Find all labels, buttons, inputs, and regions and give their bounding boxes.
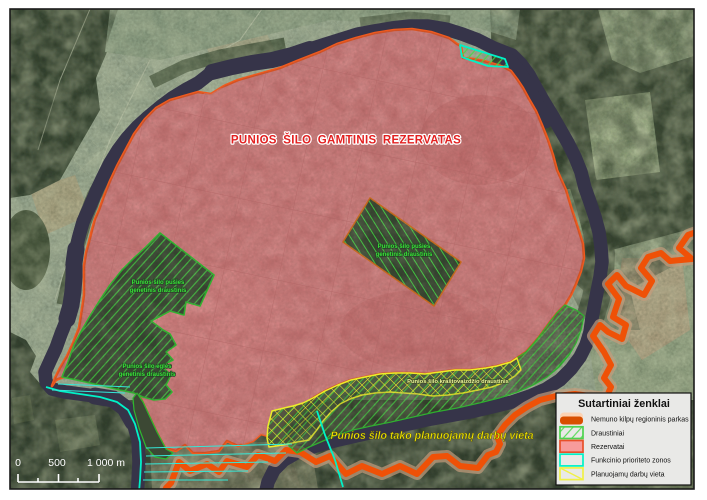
svg-text:genetinis draustinis: genetinis draustinis — [130, 288, 187, 294]
svg-text:genetinis draustinis: genetinis draustinis — [376, 252, 433, 258]
svg-text:Draustiniai: Draustiniai — [591, 430, 625, 437]
svg-text:1 000 m: 1 000 m — [87, 457, 125, 469]
svg-text:Nemuno kilpų regioninis parkas: Nemuno kilpų regioninis parkas — [591, 417, 689, 424]
svg-text:Punios šilo kraštovaizdžio dra: Punios šilo kraštovaizdžio draustinis — [407, 379, 509, 385]
svg-text:Punios šilo tako planuojamų da: Punios šilo tako planuojamų darbų vieta — [330, 430, 533, 442]
svg-text:Rezervatai: Rezervatai — [591, 444, 625, 451]
svg-text:Planuojamų darbų vieta: Planuojamų darbų vieta — [591, 471, 665, 478]
svg-text:Punios šilo pušies: Punios šilo pušies — [132, 280, 185, 286]
svg-text:genetinis draustinis: genetinis draustinis — [119, 372, 176, 378]
svg-text:Funkcinio prioriteto zonos: Funkcinio prioriteto zonos — [591, 458, 671, 465]
svg-text:Sutartiniai ženklai: Sutartiniai ženklai — [578, 398, 670, 410]
svg-text:PUNIOS ŠILO GAMTINIS REZERVATA: PUNIOS ŠILO GAMTINIS REZERVATAS — [231, 134, 461, 147]
svg-text:Punios šilo eglės: Punios šilo eglės — [122, 364, 172, 370]
svg-text:Punios šilo pušies: Punios šilo pušies — [378, 244, 431, 250]
svg-text:500: 500 — [48, 457, 66, 469]
svg-text:0: 0 — [15, 457, 21, 469]
